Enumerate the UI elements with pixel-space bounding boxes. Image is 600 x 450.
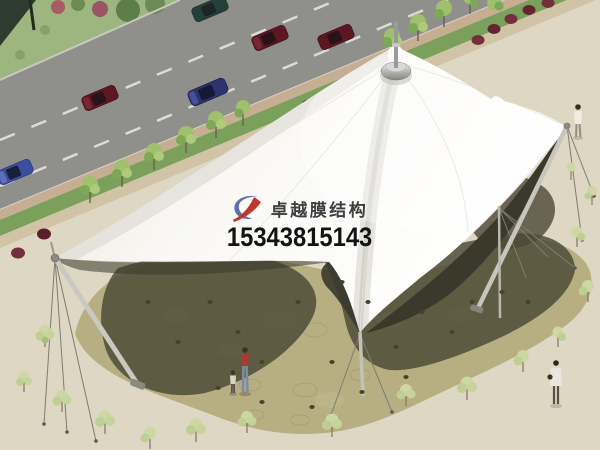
right-mast-knob <box>564 123 571 130</box>
phone-number-text: 15343815143 <box>0 223 600 251</box>
brand-logo-swoosh-icon <box>232 194 262 222</box>
spire-finial <box>393 21 398 26</box>
brand-row: 卓越膜结构 <box>0 193 600 223</box>
left-mast-knob <box>51 254 59 262</box>
watermark: 卓越膜结构 15343815143 <box>0 193 600 251</box>
rendering-canvas: 卓越膜结构 15343815143 <box>0 0 600 450</box>
brand-name-text: 卓越膜结构 <box>271 196 369 221</box>
